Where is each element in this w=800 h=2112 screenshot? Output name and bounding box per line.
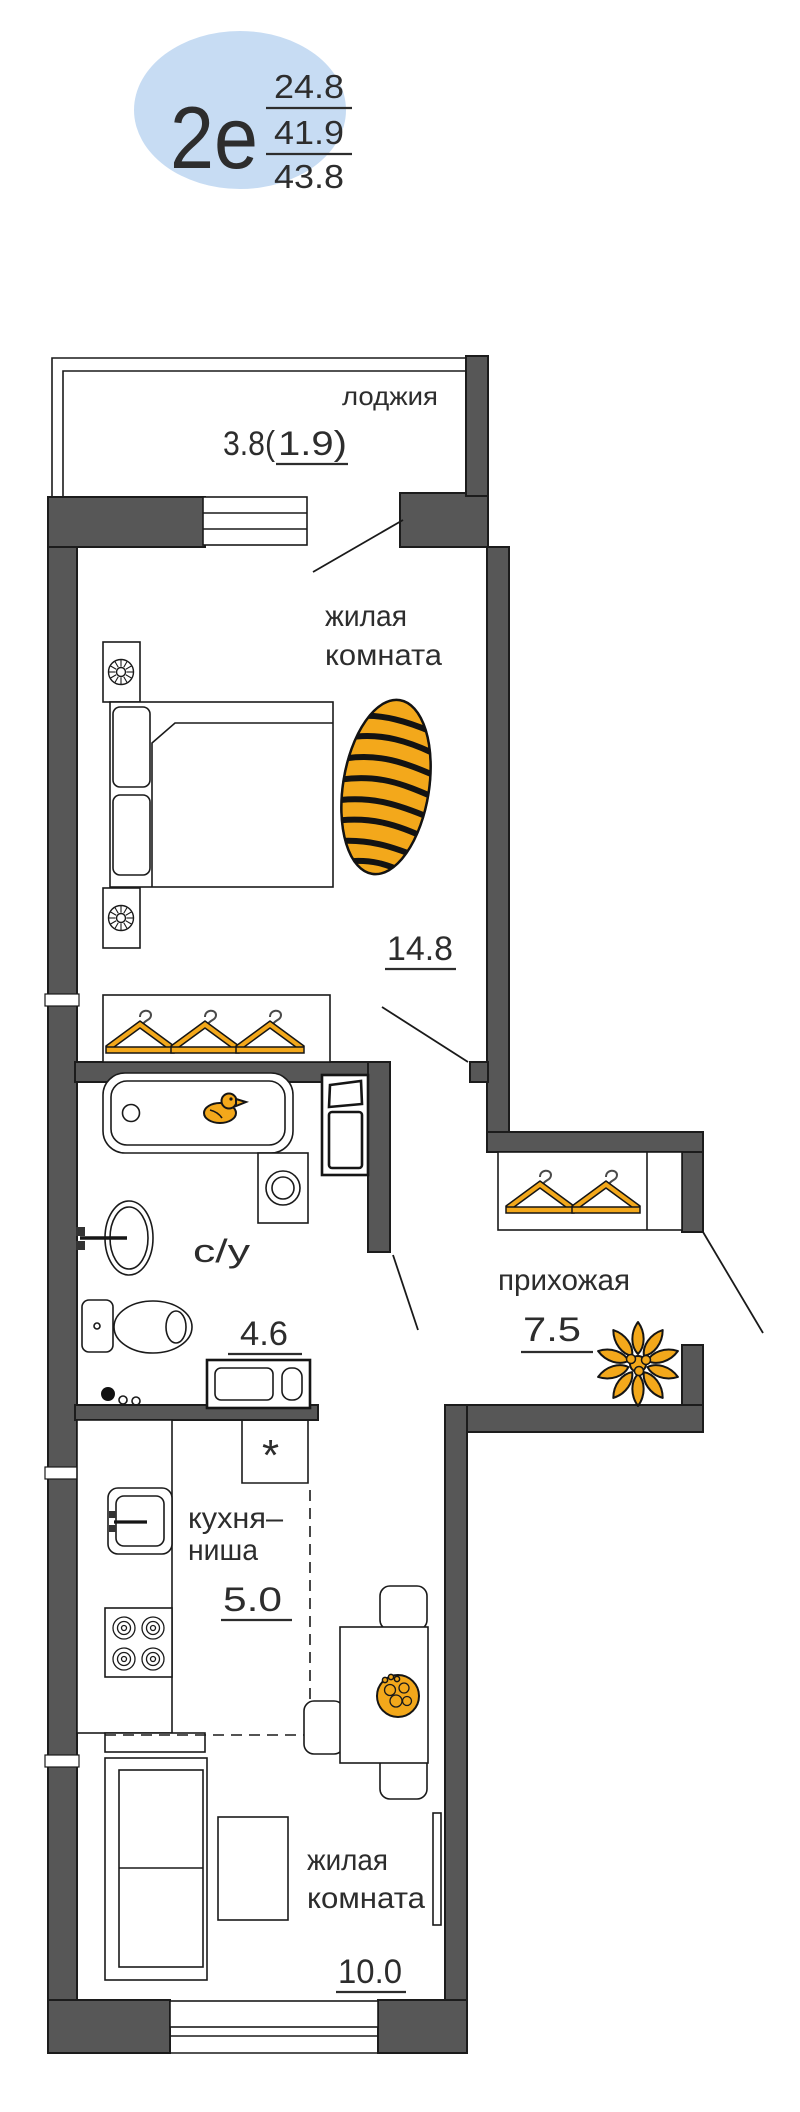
bathroom-label: с/у	[193, 1233, 250, 1269]
hallway-area-label: 7.5	[523, 1311, 581, 1349]
bathroom-door-swing	[393, 1255, 418, 1330]
badge-type-label: 2е	[170, 88, 258, 187]
entrance-door-swing	[703, 1232, 763, 1333]
wall-segment	[368, 1062, 390, 1252]
stove	[105, 1608, 172, 1677]
room-kitchen: * кухня– ниша 5.0	[77, 1420, 428, 1799]
badge-area-lower: 43.8	[274, 158, 344, 195]
tiger-rug	[323, 692, 449, 881]
chair	[304, 1701, 344, 1754]
wall-joint-notch	[45, 994, 79, 1006]
dining-set	[304, 1586, 428, 1799]
wall-segment	[400, 493, 488, 547]
kitchen-area-label: 5.0	[223, 1581, 282, 1619]
living-area-label: 10.0	[338, 1953, 402, 1991]
toilet	[82, 1300, 192, 1353]
faucet-knob	[76, 1241, 85, 1250]
niche-asterisk: *	[262, 1431, 279, 1480]
kitchen-counter	[77, 1420, 172, 1733]
wall-segment	[487, 547, 509, 1132]
living-label-line2: комната	[307, 1882, 425, 1915]
sofa	[105, 1758, 207, 1980]
bedroom-door-swing	[382, 1007, 468, 1062]
pillow	[113, 795, 150, 875]
floor-plan-svg: 2е 24.8 41.9 43.8 лоджия	[0, 0, 800, 2112]
wall-segment	[487, 1132, 703, 1152]
room-hallway: прихожая 7.5	[498, 1152, 763, 1406]
wall-segment	[48, 2000, 170, 2053]
wall-segment	[48, 497, 205, 547]
bedroom-area-label: 14.8	[387, 930, 453, 968]
chair	[380, 1586, 427, 1630]
drain-dots	[101, 1387, 140, 1405]
wall-joint-notch	[45, 1467, 79, 1479]
room-bathroom: с/у 4.6	[76, 1073, 418, 1408]
washing-machine	[258, 1153, 308, 1223]
bathroom-area-label: 4.6	[240, 1315, 288, 1353]
lamp-icon	[109, 906, 134, 931]
bathroom-cabinet	[322, 1075, 368, 1175]
pillow	[113, 707, 150, 787]
living-label-line1: жилая	[307, 1844, 388, 1877]
wall-segment	[378, 2000, 467, 2053]
balcony-window	[203, 497, 307, 545]
tv-stand	[433, 1813, 441, 1925]
kitchen-label-line1: кухня–	[188, 1502, 283, 1535]
bedroom-label-line2: комната	[325, 639, 442, 672]
badge-area-middle: 41.9	[274, 114, 344, 151]
kitchen-sink	[108, 1488, 172, 1554]
wall-segment	[470, 1062, 488, 1082]
faucet-knob	[76, 1227, 85, 1236]
bedroom-label-line1: жилая	[325, 600, 407, 633]
fruit-bowl-icon	[377, 1674, 419, 1717]
balcony-door-swing	[313, 520, 403, 572]
loggia-label: лоджия	[342, 381, 438, 411]
loggia-area-label: 3.8(	[223, 425, 276, 463]
badge-area-upper: 24.8	[274, 68, 344, 105]
sink	[76, 1201, 153, 1275]
room-bedroom: жилая комната 14.8	[103, 600, 468, 1062]
bathtub	[103, 1073, 293, 1153]
coffee-table	[218, 1817, 288, 1920]
bed	[110, 702, 333, 887]
wall-segment	[682, 1345, 703, 1405]
wall-segment	[466, 356, 488, 496]
wall-segment	[445, 1405, 467, 2053]
kitchen-label-line2: ниша	[188, 1534, 258, 1567]
loggia-area-reduced-label: 1.9)	[278, 425, 347, 463]
wall-joint-notch	[45, 1755, 79, 1767]
hallway-label: прихожая	[498, 1264, 630, 1297]
kitchen-low-cabinet	[105, 1733, 205, 1752]
floorplan-page: 2е 24.8 41.9 43.8 лоджия	[0, 0, 800, 2112]
unit-badge: 2е 24.8 41.9 43.8	[134, 31, 352, 195]
bathroom-counter-appliance	[207, 1360, 310, 1408]
wall-segment	[682, 1152, 703, 1232]
lamp-icon	[109, 660, 134, 685]
wall-segment	[48, 497, 77, 2036]
flower-icon	[596, 1322, 679, 1406]
wall-segment	[445, 1405, 703, 1432]
